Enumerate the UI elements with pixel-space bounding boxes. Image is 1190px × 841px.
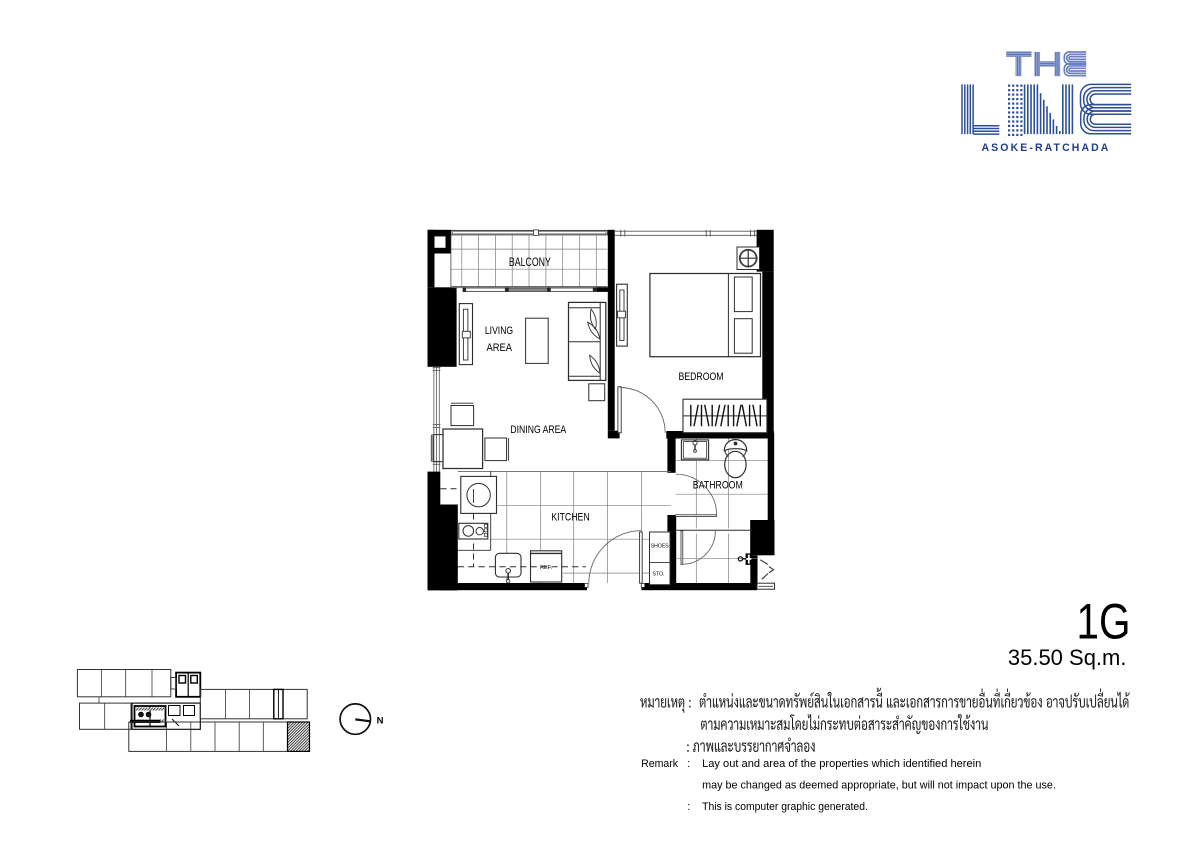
- svg-text:35.50 Sq.m.: 35.50 Sq.m.: [1008, 645, 1127, 670]
- svg-text:1G: 1G: [1077, 594, 1131, 650]
- svg-text:REF.: REF.: [540, 565, 552, 571]
- svg-text:N: N: [377, 715, 384, 726]
- svg-text:may be changed as deemed appro: may be changed as deemed appropriate, bu…: [702, 779, 1056, 791]
- svg-text:This is computer graphic gener: This is computer graphic generated.: [702, 801, 868, 813]
- svg-text:BALCONY: BALCONY: [509, 256, 551, 269]
- svg-text::: :: [687, 801, 690, 813]
- svg-text:KITCHEN: KITCHEN: [551, 512, 589, 524]
- svg-text:Lay out and area of the proper: Lay out and area of the properties which…: [702, 758, 981, 770]
- svg-text:BEDROOM: BEDROOM: [678, 371, 723, 383]
- svg-text:STO.: STO.: [653, 572, 665, 578]
- svg-text::: :: [687, 758, 690, 770]
- svg-text:DINING AREA: DINING AREA: [510, 424, 566, 436]
- svg-text:LIVING: LIVING: [485, 325, 513, 337]
- svg-text:SHOES: SHOES: [651, 544, 669, 550]
- svg-text:ASOKE-RATCHADA: ASOKE-RATCHADA: [982, 142, 1111, 154]
- svg-text:BATHROOM: BATHROOM: [693, 479, 743, 491]
- svg-text:Remark: Remark: [641, 758, 679, 770]
- svg-text:AREA: AREA: [487, 342, 513, 354]
